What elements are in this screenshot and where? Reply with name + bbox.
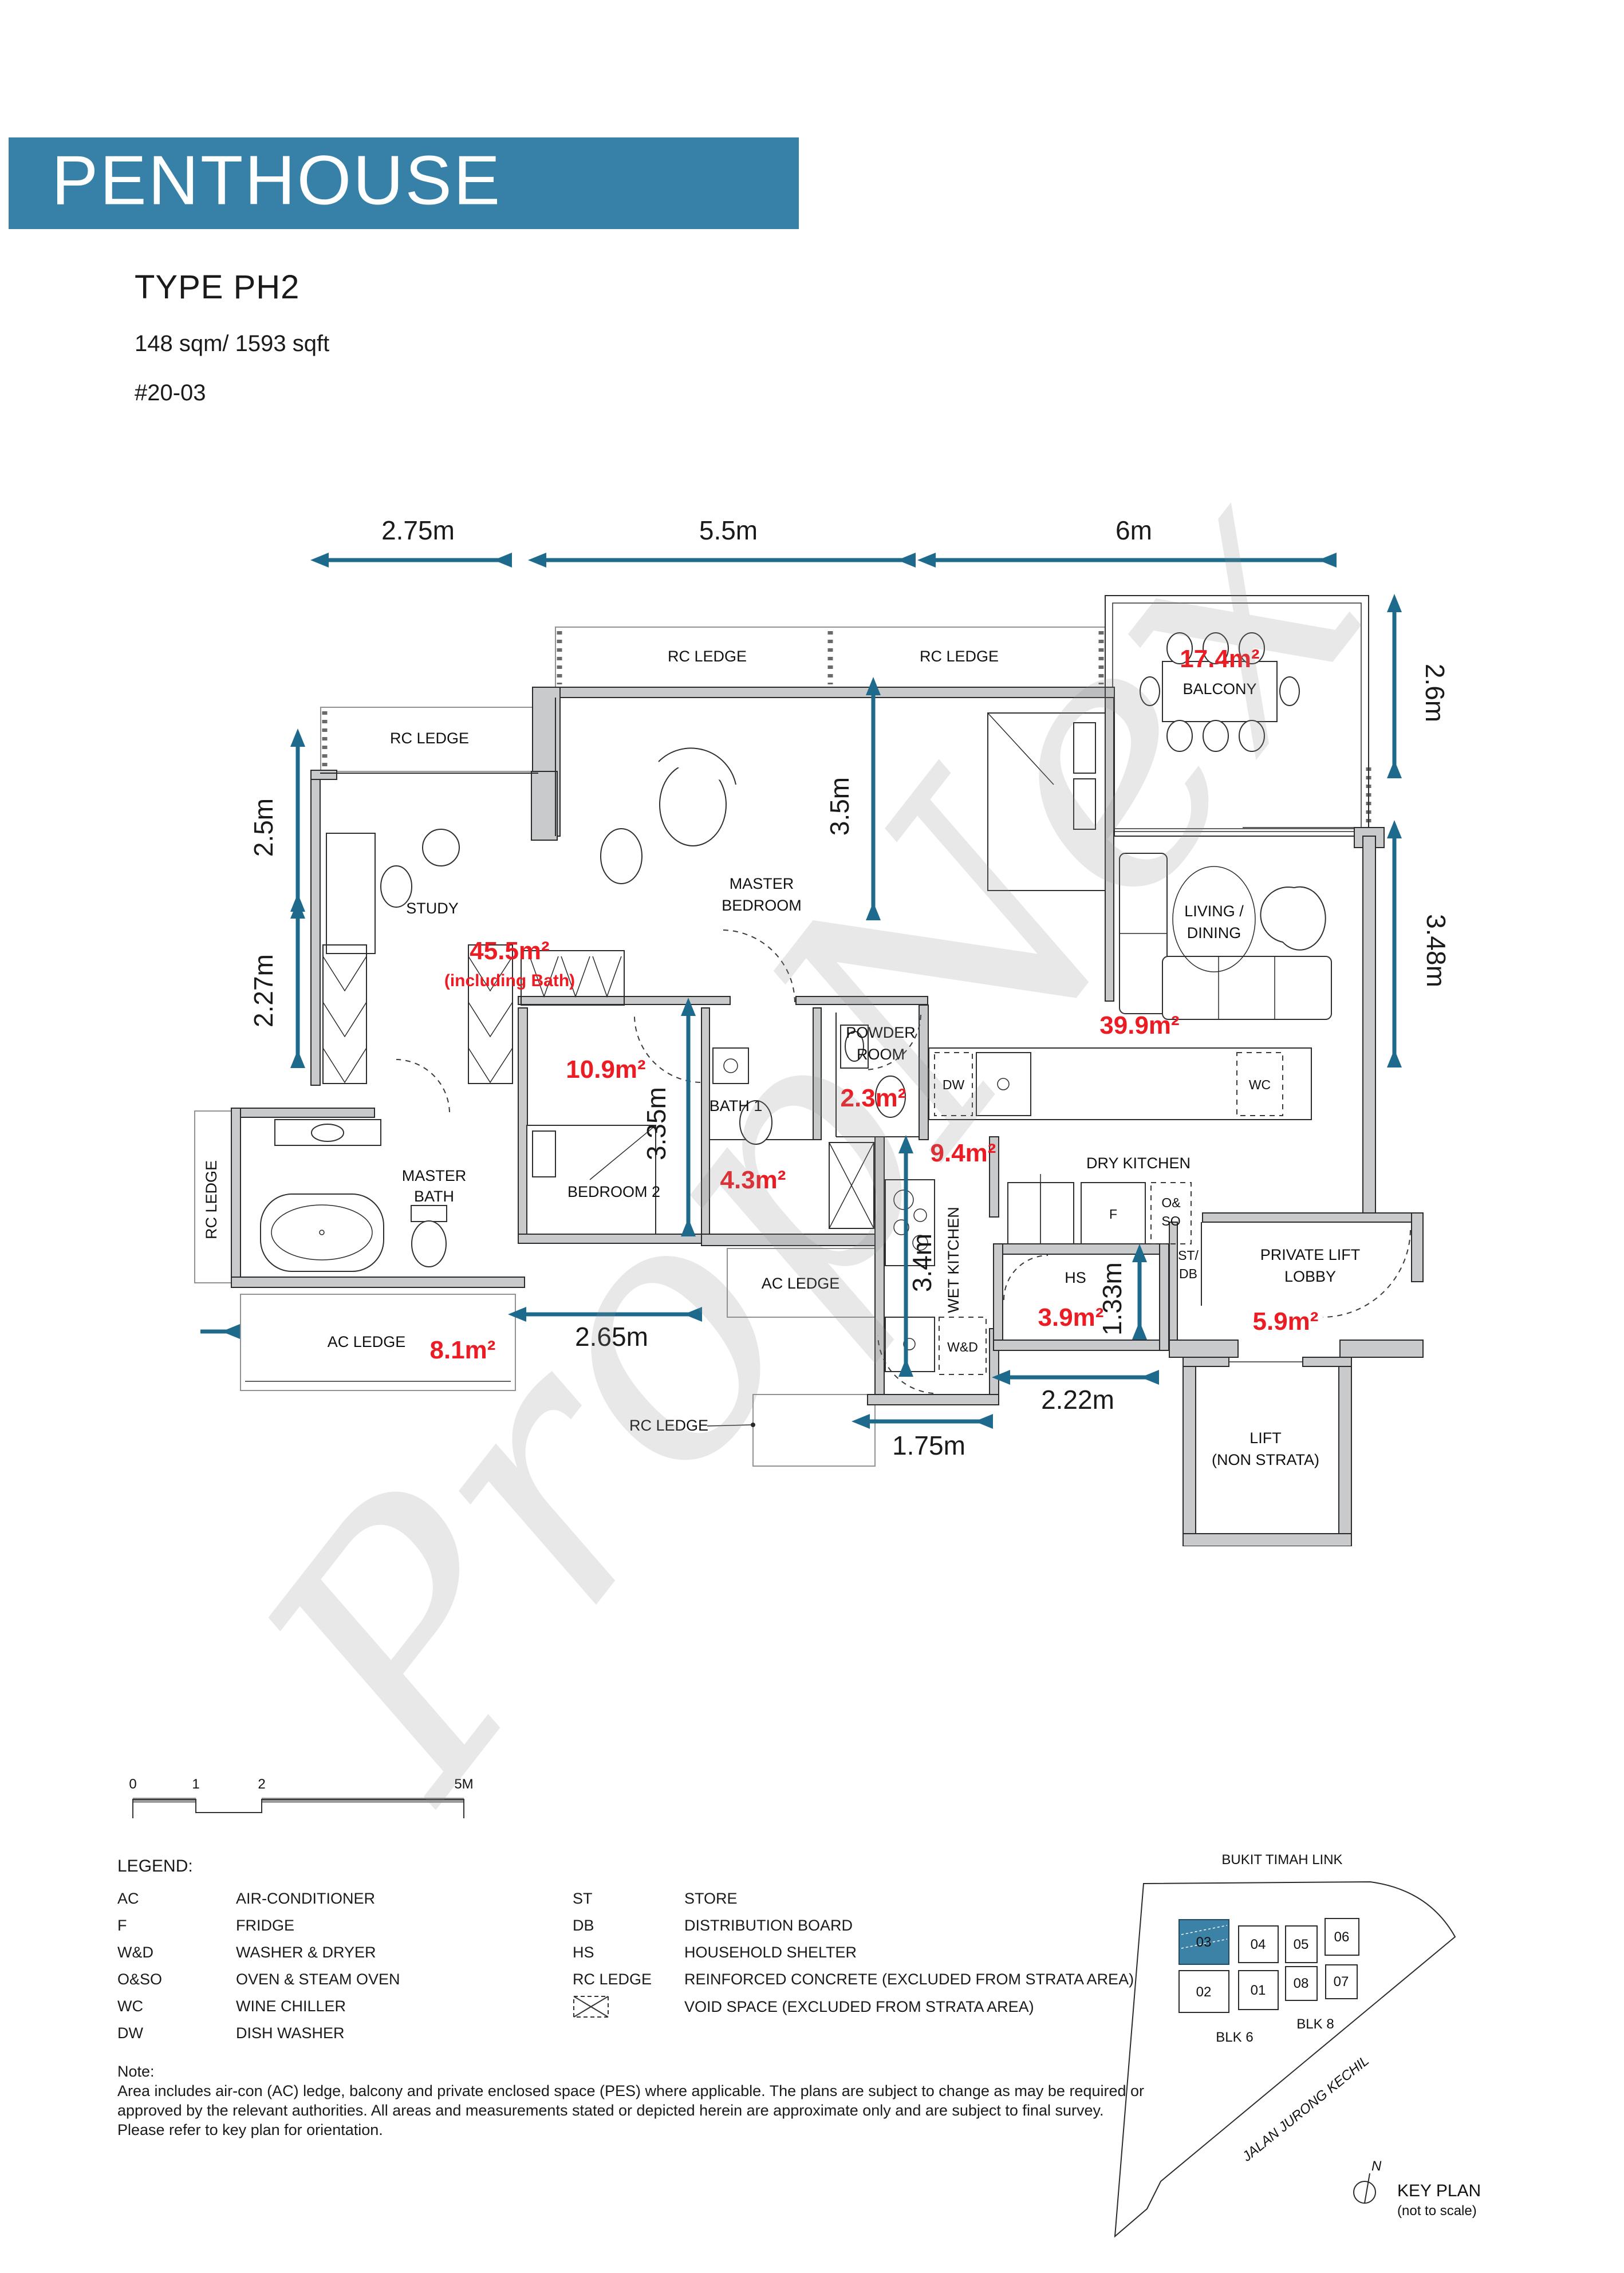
area-study-note: (including Bath)	[444, 971, 575, 990]
keyplan-unit-03: 03	[1196, 1935, 1212, 1950]
dim-2-65m: 2.65m	[575, 1322, 648, 1352]
lobby-label-1: PRIVATE LIFT	[1260, 1246, 1361, 1263]
lobby-label-2: LOBBY	[1284, 1268, 1336, 1285]
legend-item: WCWINE CHILLER	[117, 1998, 143, 2015]
keyplan-blk8: BLK 8	[1296, 2016, 1334, 2032]
note-line: Area includes air-con (AC) ledge, balcon…	[117, 2081, 1144, 2101]
scale-5m: 5M	[454, 1776, 473, 1792]
powder-label-1: POWDER	[846, 1024, 916, 1041]
road-bukit-timah-link: BUKIT TIMAH LINK	[1221, 1852, 1342, 1868]
legend-title: LEGEND:	[117, 1857, 193, 1876]
keyplan-unit-01: 01	[1251, 1983, 1266, 1998]
lift-label-1: LIFT	[1249, 1429, 1282, 1447]
legend-item: ACAIR-CONDITIONER	[117, 1890, 139, 1908]
keyplan-subtitle: (not to scale)	[1397, 2203, 1477, 2219]
balcony	[1105, 596, 1369, 836]
master-bedroom-label-2: BEDROOM	[722, 897, 802, 914]
area-powder: 2.3m²	[841, 1084, 906, 1112]
keyplan-unit-08: 08	[1294, 1976, 1309, 1991]
void-space	[829, 1143, 874, 1228]
note-line: Please refer to key plan for orientation…	[117, 2120, 1144, 2140]
keyplan-blk6: BLK 6	[1216, 2030, 1253, 2045]
lift-label-2: (NON STRATA)	[1212, 1451, 1319, 1468]
north-compass-icon: N	[1354, 2158, 1382, 2203]
rc-ledge-mb2-label: RC LEDGE	[920, 648, 999, 665]
keyplan-unit-02: 02	[1196, 1984, 1212, 2000]
st-db-label-1: ST/	[1178, 1248, 1199, 1263]
balcony-label: BALCONY	[1182, 680, 1256, 698]
area-bath1: 4.3m²	[720, 1166, 786, 1194]
dim-5-5m: 5.5m	[699, 515, 758, 545]
bath1-label: BATH 1	[709, 1097, 763, 1114]
scale-bar: 0 1 2 5M	[115, 1772, 515, 1830]
void-space-icon	[573, 1995, 609, 2018]
scale-0: 0	[129, 1776, 136, 1792]
unit-number-label: #20-03	[135, 380, 206, 406]
dim-1-75m: 1.75m	[892, 1431, 965, 1460]
area-hs: 3.9m²	[1038, 1303, 1104, 1332]
rc-ledge-bottom-label: RC LEDGE	[629, 1417, 708, 1434]
master-bath-label-1: MASTER	[402, 1167, 467, 1184]
unit-area-label: 148 sqm/ 1593 sqft	[135, 331, 329, 357]
wet-kitchen-label: WET KITCHEN	[945, 1207, 962, 1313]
rc-ledge-study-label: RC LEDGE	[390, 730, 469, 747]
dim-6m: 6m	[1115, 515, 1152, 545]
key-plan: BUKIT TIMAH LINK 03 04 05 06 02 01 08 07…	[1085, 1798, 1623, 2245]
bedroom2-label: BEDROOM 2	[567, 1183, 660, 1200]
area-living: 39.9m²	[1099, 1011, 1179, 1039]
keyplan-title: KEY PLAN	[1397, 2181, 1481, 2200]
dim-2-22m: 2.22m	[1041, 1385, 1114, 1415]
wc-label: WC	[1249, 1077, 1271, 1092]
master-bedroom-label-1: MASTER	[730, 875, 794, 892]
area-balcony: 17.4m²	[1180, 645, 1259, 673]
dim-3-5m: 3.5m	[825, 777, 854, 836]
dim-3-48m: 3.48m	[1421, 914, 1449, 987]
rc-ledge-mb-label: RC LEDGE	[668, 648, 747, 665]
rc-ledge-left-label: RC LEDGE	[203, 1160, 220, 1239]
floorplan-page: PENTHOUSE TYPE PH2 148 sqm/ 1593 sqft #2…	[0, 0, 1624, 2273]
dim-2-27m: 2.27m	[249, 954, 278, 1027]
area-lobby: 5.9m²	[1253, 1307, 1319, 1336]
legend-item: W&DWASHER & DRYER	[117, 1944, 153, 1961]
legend-item: DWDISH WASHER	[117, 2024, 143, 2042]
legend-item: HSHOUSEHOLD SHELTER	[573, 1944, 594, 1961]
area-ac-ledge: 8.1m²	[430, 1336, 496, 1364]
svg-text:N: N	[1371, 2158, 1382, 2174]
note-title: Note:	[117, 2062, 1144, 2081]
ac-ledge-label: AC LEDGE	[328, 1333, 406, 1350]
living-label-1: LIVING /	[1184, 903, 1244, 920]
hs-label: HS	[1065, 1269, 1086, 1286]
dim-3-4m: 3.4m	[907, 1234, 937, 1292]
unit-type-label: TYPE PH2	[135, 268, 299, 306]
legend-item-void: VOID SPACE (EXCLUDED FROM STRATA AREA)	[573, 1995, 609, 2018]
ac-ledge2-label: AC LEDGE	[762, 1275, 840, 1292]
master-bath-label-2: BATH	[414, 1188, 454, 1205]
area-study: 45.5m²	[470, 937, 549, 965]
dim-2-75m: 2.75m	[381, 515, 455, 545]
keyplan-unit-07: 07	[1334, 1974, 1349, 1990]
dim-2-5m: 2.5m	[249, 798, 278, 857]
scale-2: 2	[258, 1776, 265, 1792]
keyplan-unit-06: 06	[1334, 1929, 1350, 1945]
legend-item: DBDISTRIBUTION BOARD	[573, 1917, 594, 1935]
legend-item: STSTORE	[573, 1890, 593, 1908]
title-banner: PENTHOUSE	[9, 137, 799, 229]
dim-3-35m: 3.35m	[641, 1087, 671, 1160]
keyplan-unit-05: 05	[1294, 1937, 1309, 1952]
st-db-label-2: DB	[1179, 1266, 1197, 1281]
legend-item: RC LEDGEREINFORCED CONCRETE (EXCLUDED FR…	[573, 1971, 652, 1988]
legend-item: FFRIDGE	[117, 1917, 127, 1935]
legend-item: O&SOOVEN & STEAM OVEN	[117, 1971, 162, 1988]
road-jalan-jurong-kechil: JALAN JURONG KECHIL	[1239, 2053, 1372, 2165]
dw-label: DW	[943, 1077, 965, 1092]
fridge-label: F	[1109, 1207, 1117, 1222]
area-bedroom2: 10.9m²	[566, 1055, 645, 1084]
note-line: approved by the relevant authorities. Al…	[117, 2101, 1144, 2120]
banner-title: PENTHOUSE	[52, 140, 502, 220]
oso-label-1: O&	[1161, 1195, 1180, 1210]
dim-2-6m: 2.6m	[1420, 664, 1449, 722]
dry-kitchen-label: DRY KITCHEN	[1086, 1155, 1191, 1172]
study-label: STUDY	[406, 900, 459, 917]
powder-label-2: ROOM	[857, 1046, 905, 1063]
wd-label: W&D	[947, 1340, 978, 1354]
scale-1: 1	[192, 1776, 199, 1792]
oso-label-2: SO	[1161, 1214, 1180, 1228]
note-block: Note: Area includes air-con (AC) ledge, …	[117, 2062, 1144, 2140]
keyplan-unit-04: 04	[1251, 1937, 1266, 1952]
floor-plan: 2.75m 5.5m 6m 2.6m 3.48m 2.5m 2.27m 3.5m…	[189, 515, 1449, 1546]
living-label-2: DINING	[1187, 924, 1241, 941]
area-wet-kitchen: 9.4m²	[931, 1139, 996, 1167]
